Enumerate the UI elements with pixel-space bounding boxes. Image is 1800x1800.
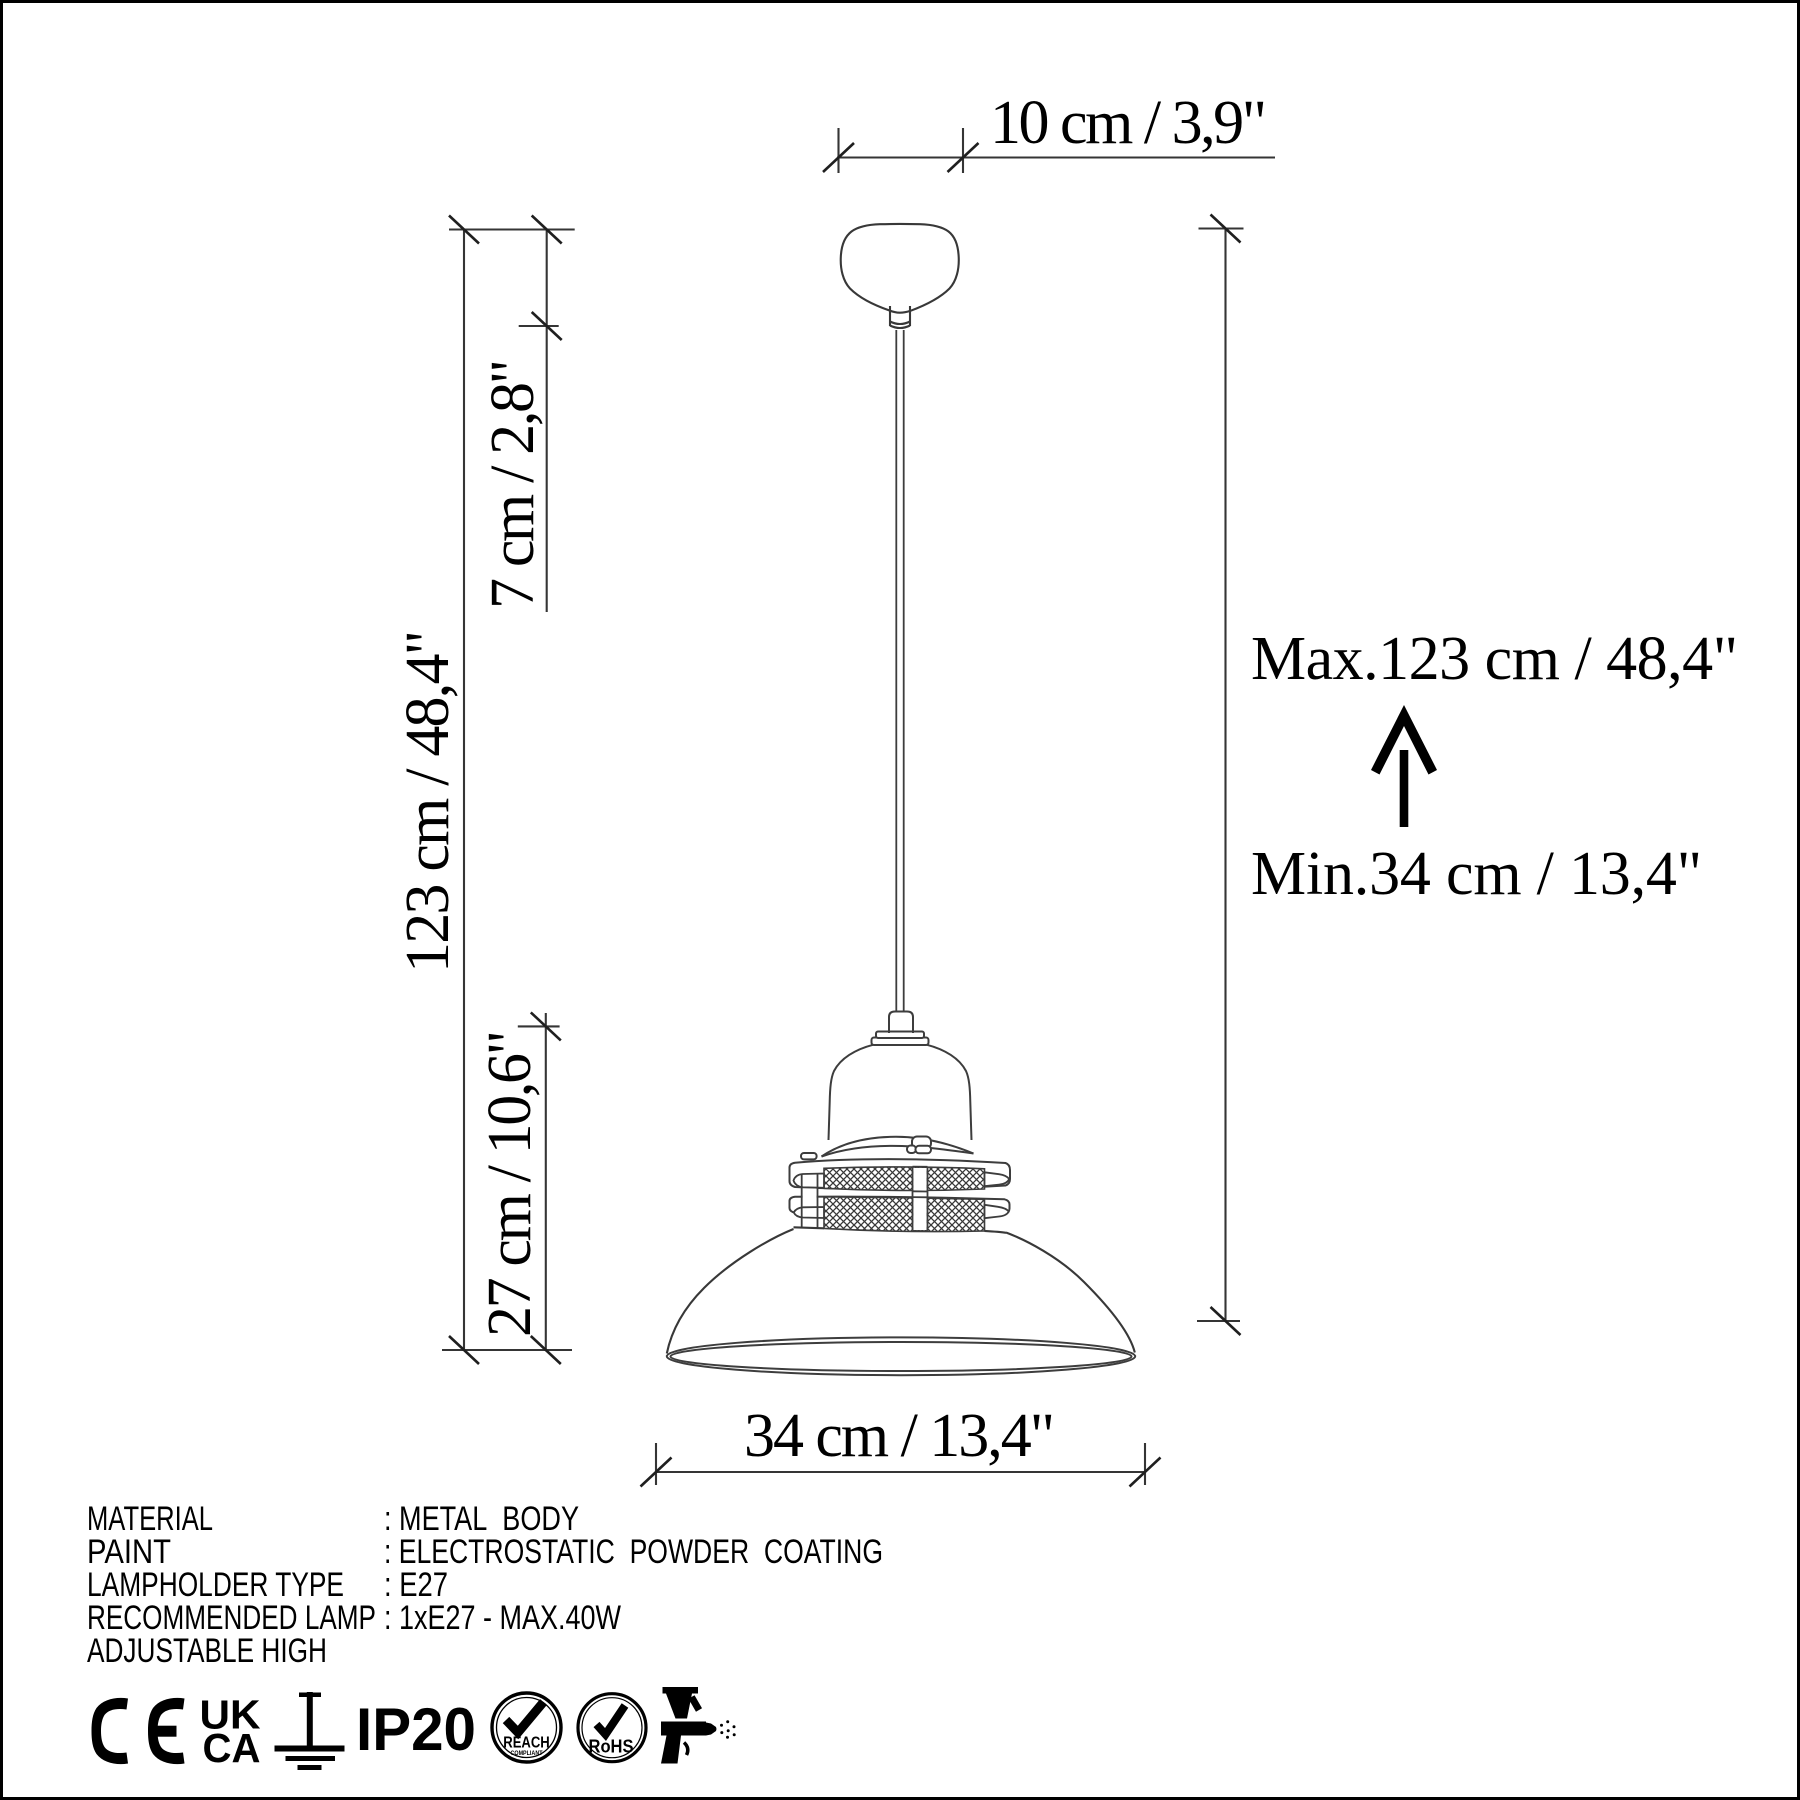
svg-text:IP20: IP20	[356, 1695, 476, 1763]
svg-text:34 cm / 13,4": 34 cm / 13,4"	[744, 1402, 1055, 1470]
svg-text:COMPLIANT: COMPLIANT	[511, 1750, 543, 1757]
svg-text:ADJUSTABLE HIGH: ADJUSTABLE HIGH	[87, 1632, 327, 1670]
svg-text:123 cm / 48,4": 123 cm / 48,4"	[394, 630, 462, 973]
svg-text:27 cm / 10,6": 27 cm / 10,6"	[476, 1030, 544, 1337]
svg-text:7 cm / 2,8": 7 cm / 2,8"	[479, 359, 547, 609]
svg-text:Max.123 cm / 48,4": Max.123 cm / 48,4"	[1251, 625, 1738, 693]
svg-text:10 cm / 3,9": 10 cm / 3,9"	[990, 89, 1267, 157]
svg-text:Min.34 cm / 13,4": Min.34 cm / 13,4"	[1251, 840, 1702, 908]
svg-text:CA: CA	[203, 1725, 261, 1771]
svg-text:RoHS: RoHS	[589, 1737, 634, 1757]
svg-text:: 1xE27 - MAX.40W: : 1xE27 - MAX.40W	[384, 1599, 621, 1637]
svg-text:: ELECTROSTATIC POWDER COATI: : ELECTROSTATIC POWDER COATING	[384, 1533, 883, 1571]
